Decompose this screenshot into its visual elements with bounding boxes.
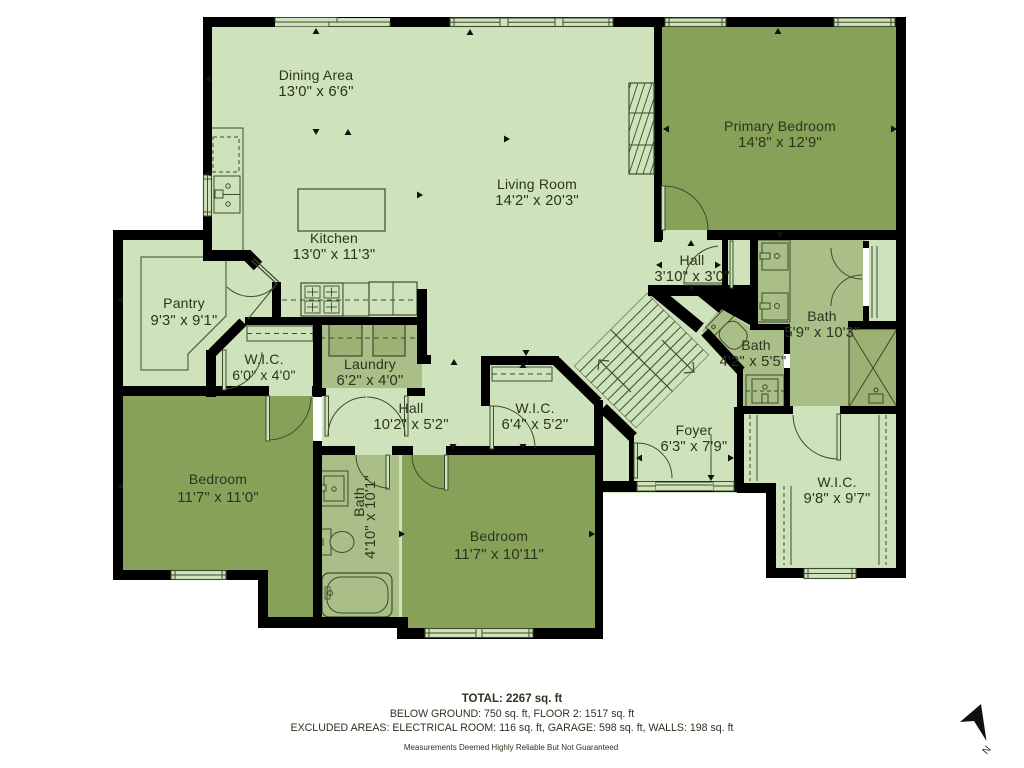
svg-text:4'10" x 10'1": 4'10" x 10'1" [363,475,379,559]
svg-text:Hall: Hall [399,400,424,416]
svg-text:13'0" x 6'6": 13'0" x 6'6" [278,84,353,100]
svg-text:14'8" x 12'9": 14'8" x 12'9" [738,135,822,151]
svg-text:6'2" x 4'0": 6'2" x 4'0" [337,373,404,389]
svg-text:5'9" x 10'3": 5'9" x 10'3" [784,325,859,341]
svg-text:BELOW GROUND: 750 sq. ft, FLOO: BELOW GROUND: 750 sq. ft, FLOOR 2: 1517 … [390,708,634,720]
svg-text:4'2" x 5'5": 4'2" x 5'5" [720,354,787,370]
svg-text:Measurements Deemed Highly Rel: Measurements Deemed Highly Reliable But … [404,743,618,752]
svg-text:W.I.C.: W.I.C. [817,474,856,490]
svg-text:Dining Area: Dining Area [279,67,354,83]
svg-text:6'4" x 5'2": 6'4" x 5'2" [502,417,569,433]
svg-text:Bedroom: Bedroom [189,471,247,487]
svg-text:Pantry: Pantry [163,295,205,311]
svg-text:9'8" x 9'7": 9'8" x 9'7" [804,491,871,507]
svg-text:Bath: Bath [741,337,771,353]
svg-text:Bedroom: Bedroom [470,528,528,544]
svg-text:Bath: Bath [807,308,837,324]
svg-text:Hall: Hall [680,252,705,268]
svg-text:11'7" x 11'0": 11'7" x 11'0" [177,490,259,506]
svg-text:11'7" x 10'11": 11'7" x 10'11" [454,547,544,563]
svg-text:EXCLUDED AREAS: ELECTRICAL ROO: EXCLUDED AREAS: ELECTRICAL ROOM: 116 sq.… [291,722,734,734]
svg-text:Foyer: Foyer [676,422,713,438]
svg-text:Kitchen: Kitchen [310,230,358,246]
svg-text:13'0" x 11'3": 13'0" x 11'3" [293,247,376,263]
svg-text:Primary Bedroom: Primary Bedroom [724,118,836,134]
svg-text:Living Room: Living Room [497,176,577,192]
svg-text:W.I.C.: W.I.C. [515,400,554,416]
svg-text:6'3" x 7'9": 6'3" x 7'9" [661,439,728,455]
svg-text:3'10" x 3'0": 3'10" x 3'0" [654,269,729,285]
svg-text:10'2" x 5'2": 10'2" x 5'2" [373,417,448,433]
svg-text:Laundry: Laundry [344,356,396,372]
svg-text:9'3" x 9'1": 9'3" x 9'1" [151,313,218,329]
svg-text:TOTAL: 2267 sq. ft: TOTAL: 2267 sq. ft [462,693,563,705]
svg-text:6'0" x 4'0": 6'0" x 4'0" [232,367,295,383]
svg-text:14'2" x 20'3": 14'2" x 20'3" [495,193,579,209]
svg-text:W.I.C.: W.I.C. [244,351,283,367]
